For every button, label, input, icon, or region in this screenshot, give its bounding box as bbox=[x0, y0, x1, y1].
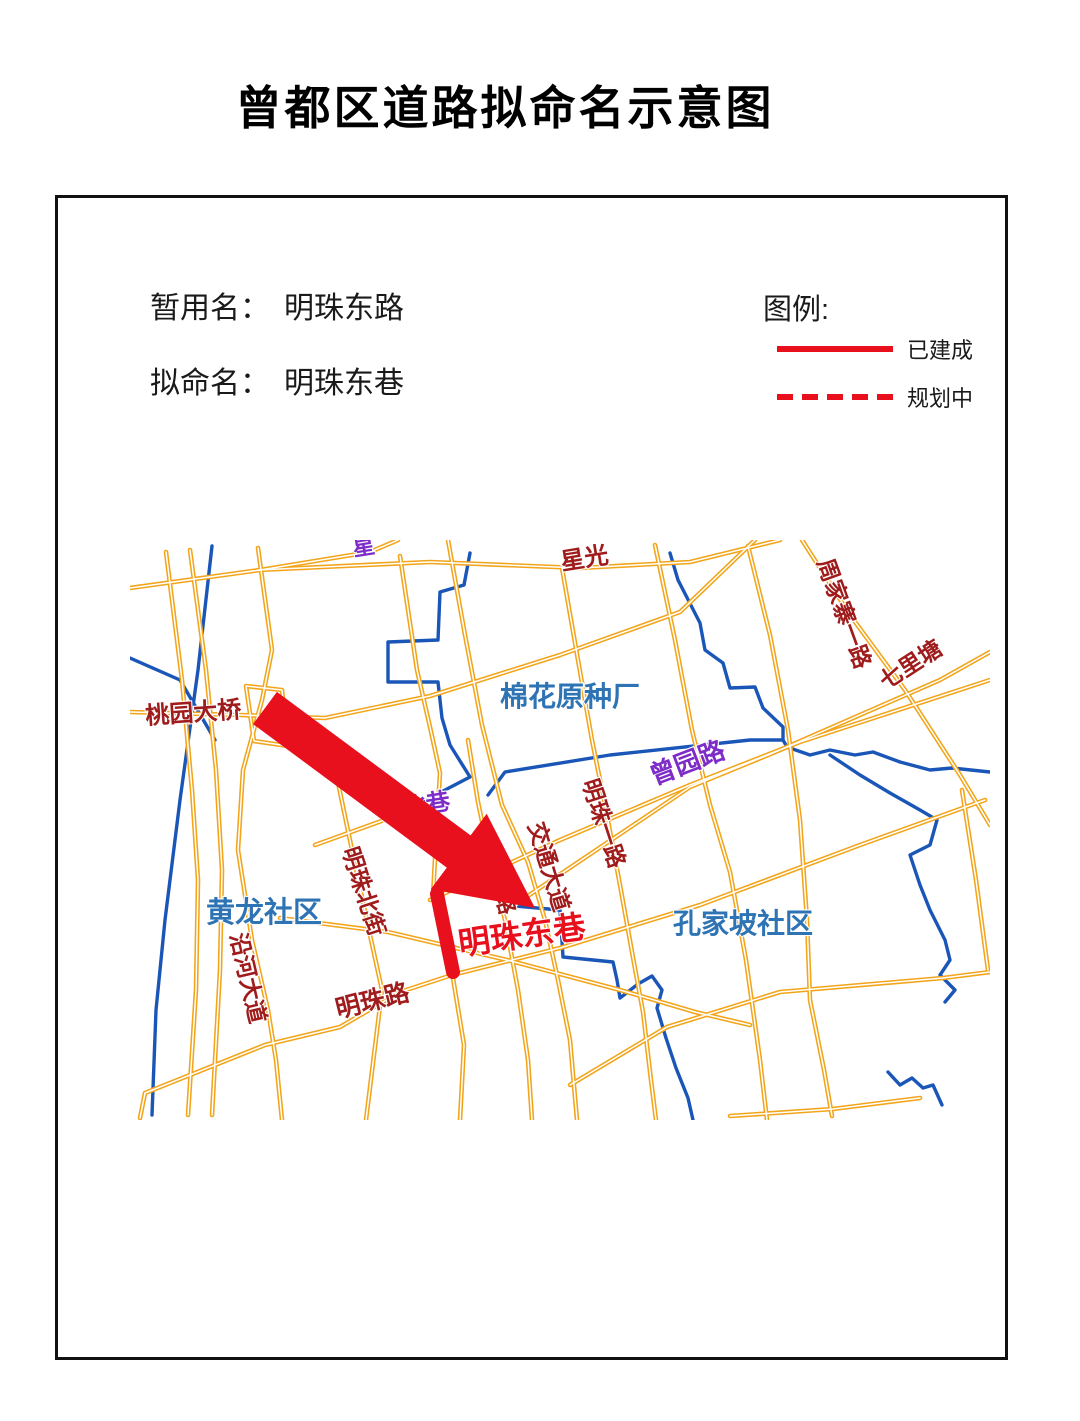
page: 曾都区道路拟命名示意图 暂用名：明珠东路 拟命名：明珠东巷 图例: 已建成 规划… bbox=[0, 0, 1080, 1421]
temporary-name-value: 明珠东路 bbox=[284, 292, 404, 325]
legend-item-planned: 规划中 bbox=[775, 381, 973, 413]
proposed-name-value: 明珠东巷 bbox=[284, 367, 404, 400]
map-label-purple-road-fragment: 星 bbox=[351, 540, 377, 561]
map-label-mingzhu-road: 明珠路 bbox=[333, 978, 414, 1024]
map-label-zhoujiazhai-yilu: 周家寨一路 bbox=[812, 555, 876, 673]
temporary-name-line: 暂用名：明珠东路 bbox=[150, 283, 404, 327]
map-label-mingzhu-dongxiang: 明珠东巷 bbox=[456, 908, 589, 962]
map-label-taoyuan-bridge: 桃园大桥 bbox=[145, 696, 244, 730]
map-label-xingguang-fragment: 星光 bbox=[559, 542, 611, 576]
page-title: 曾都区道路拟命名示意图 bbox=[0, 72, 1010, 138]
highlighted-road-segment bbox=[437, 894, 453, 972]
temporary-name-label: 暂用名： bbox=[150, 292, 270, 325]
legend-planned-label: 规划中 bbox=[907, 381, 973, 413]
legend-heading: 图例: bbox=[763, 286, 829, 328]
map-label-kongjiapo-community: 孔家坡社区 bbox=[673, 907, 813, 939]
road-naming-map: 桃园大桥星光星周家寨一路七里塘棉花原种厂曾园路明珠一路交通大道汉孟路杨北巷明珠北… bbox=[130, 540, 990, 1120]
legend-built-label: 已建成 bbox=[907, 333, 973, 365]
legend-solid-line-icon bbox=[775, 342, 895, 356]
proposed-name-label: 拟命名： bbox=[150, 367, 270, 400]
proposed-name-line: 拟命名：明珠东巷 bbox=[150, 358, 404, 402]
legend-item-built: 已建成 bbox=[775, 333, 973, 365]
map-label-yanhe-avenue: 沿河大道 bbox=[225, 930, 271, 1025]
highlight-arrow bbox=[253, 692, 535, 908]
legend-dashed-line-icon bbox=[775, 390, 895, 404]
map-label-huanglong-community: 黄龙社区 bbox=[206, 896, 322, 929]
map-label-mianhua-seed-factory: 棉花原种厂 bbox=[500, 681, 640, 712]
map-label-zengyuan-road: 曾园路 bbox=[645, 734, 730, 790]
map-label-qilitang: 七里塘 bbox=[875, 635, 947, 694]
